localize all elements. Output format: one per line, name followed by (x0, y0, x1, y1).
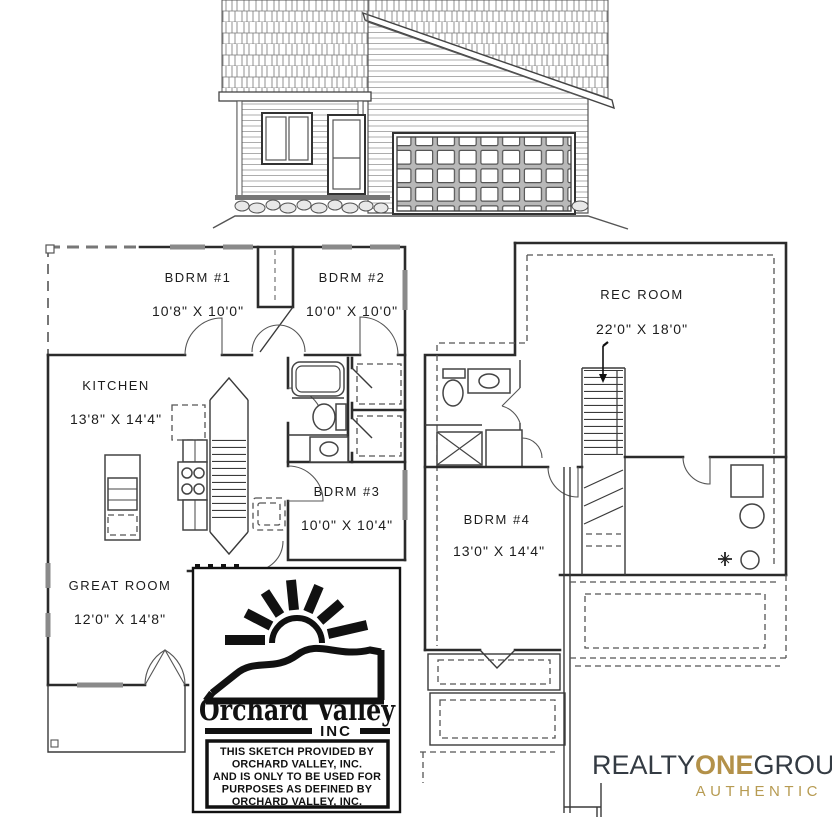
kitchen-dims: 13'8" X 14'4" (70, 411, 162, 427)
water-heater (740, 504, 764, 528)
front-window (262, 113, 312, 164)
bdrm2-dims: 10'0" X 10'0" (306, 303, 398, 319)
front-porch-outline (46, 245, 140, 355)
house-front-elevation (210, 0, 635, 232)
basement-toilet (443, 369, 465, 406)
storage-area (570, 575, 786, 666)
basement-vanity (468, 369, 510, 393)
bdrm4-walls (425, 467, 582, 668)
builder-suffix: INC (320, 723, 352, 740)
brokerage-tagline: AUTHENTIC (592, 784, 822, 799)
svg-text:THIS SKETCH PROVIDED BY: THIS SKETCH PROVIDED BY (220, 746, 375, 758)
entry-door-arc (252, 325, 305, 352)
stairs-basement (582, 342, 625, 575)
patio-door-arc (145, 650, 185, 685)
listing-sketch-page: BDRM #1 10'8" X 10'0" BDRM #2 10'0" X 10… (0, 0, 832, 817)
front-door-window (328, 115, 365, 194)
mech-chase (437, 432, 482, 465)
bdrm1-door-arc (185, 318, 222, 355)
svg-text:ORCHARD VALLEY, INC.: ORCHARD VALLEY, INC. (232, 796, 362, 808)
bath-vanity (310, 437, 348, 462)
linen-closets (352, 358, 405, 462)
kitchen-island (105, 455, 140, 540)
basement-floor-plan: REC ROOM 22'0" X 18'0" BDRM #4 13'0" X 1… (420, 238, 800, 817)
bathtub (292, 362, 344, 396)
corner-board-left (237, 101, 242, 198)
bdrm1-label: BDRM #1 (165, 270, 232, 285)
hall-closet (486, 430, 542, 467)
pantry-box (253, 498, 285, 530)
bdrm3-dims: 10'0" X 10'4" (301, 517, 393, 533)
recroom-dims: 22'0" X 18'0" (596, 321, 688, 337)
bdrm4-closets (420, 654, 565, 783)
greatroom-dims: 12'0" X 14'8" (74, 611, 166, 627)
ground-line (213, 216, 628, 229)
utility-area (625, 457, 786, 569)
builder-logo-box: Orchard Valley INC THIS SKETCH PROVIDED … (193, 568, 400, 812)
greatroom-label: GREAT ROOM (69, 578, 172, 593)
brokerage-name-one: ONE (695, 750, 754, 780)
floor-drain (741, 551, 759, 569)
bdrm1-dims: 10'8" X 10'0" (152, 303, 244, 319)
entry-closet (258, 247, 293, 352)
svg-text:ORCHARD VALLEY, INC.: ORCHARD VALLEY, INC. (232, 759, 362, 771)
builder-name: Orchard Valley (199, 693, 396, 727)
sun-icon (272, 618, 322, 643)
svg-text:PURPOSES AS DEFINED BY: PURPOSES AS DEFINED BY (222, 784, 373, 796)
bdrm4-dims: 13'0" X 14'4" (453, 543, 545, 559)
rear-deck (48, 685, 185, 752)
stove (178, 462, 207, 500)
brokerage-name-group: GROUP (754, 750, 832, 780)
bdrm2-door-arc (360, 317, 398, 355)
brokerage-name-realty: REALTY (592, 750, 695, 780)
furnace (731, 465, 763, 497)
disclaimer-box: THIS SKETCH PROVIDED BY ORCHARD VALLEY, … (207, 741, 388, 808)
toilet (313, 404, 346, 430)
bdrm3-label: BDRM #3 (314, 484, 381, 499)
kitchen-label: KITCHEN (82, 378, 150, 393)
bdrm4-label: BDRM #4 (464, 512, 531, 527)
gable-trim-band (219, 92, 371, 101)
bdrm3-walls (288, 462, 405, 560)
main-floor-plan: BDRM #1 10'8" X 10'0" BDRM #2 10'0" X 10… (40, 238, 425, 817)
brokerage-name: REALTYONEGROUP (592, 752, 822, 779)
stairs-main (210, 378, 248, 554)
gable-shingles (222, 0, 368, 92)
garage-door (393, 133, 575, 214)
refrigerator (172, 405, 205, 440)
recroom-label: REC ROOM (600, 287, 684, 302)
valve-icon (718, 552, 732, 566)
brokerage-logo: REALTYONEGROUP AUTHENTIC (592, 752, 822, 799)
bdrm2-label: BDRM #2 (319, 270, 386, 285)
basement-bathroom (425, 360, 520, 430)
svg-text:AND IS ONLY TO BE USED FOR: AND IS ONLY TO BE USED FOR (213, 771, 381, 783)
